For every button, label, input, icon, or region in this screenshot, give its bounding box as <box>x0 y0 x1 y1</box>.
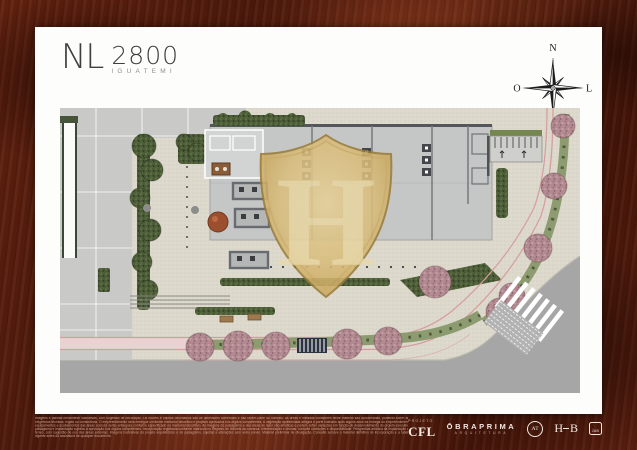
obraprima-sublabel: ARQUITETURA <box>455 432 509 435</box>
brand-subtitle: IGUATEMI <box>111 68 179 75</box>
hb-right-letter: B <box>570 421 578 436</box>
site-plan: H <box>60 108 580 393</box>
walkway <box>63 122 75 258</box>
terrace-table <box>212 163 230 175</box>
legal-disclaimer: Imagens e plantas meramente ilustrativas… <box>35 417 408 447</box>
compass-north-label: N <box>549 43 556 54</box>
brand-initials: NL <box>61 44 103 72</box>
at-monogram-logo: AT <box>527 421 543 437</box>
obraprima-mark: ŌBRAPRIMA <box>447 423 517 431</box>
bench <box>248 314 261 320</box>
hb-left-letter: H <box>554 421 563 436</box>
bike-path <box>60 338 186 349</box>
promenade-hedge <box>195 307 275 315</box>
courtyard-red-tree <box>208 212 228 232</box>
credits-row: PROJETO CFL ŌBRAPRIMA ARQUITETURA AT H B… <box>408 417 602 438</box>
rooftop-annex <box>205 130 263 178</box>
bench <box>220 316 233 322</box>
ramp-side-hedge <box>496 168 508 218</box>
obraprima-logo: ŌBRAPRIMA ARQUITETURA <box>447 423 517 435</box>
footer-band: Imagens e plantas meramente ilustrativas… <box>35 417 602 447</box>
jab-monogram-logo: JAB <box>589 422 602 435</box>
compass-west-label: O <box>513 84 520 95</box>
hb-bar <box>563 428 569 429</box>
plaza-tree <box>191 206 199 214</box>
presentation-board: NL 2800 IGUATEMI <box>0 0 637 450</box>
hb-monogram-logo: H B <box>554 421 578 436</box>
ventilation-grate <box>297 338 327 353</box>
plaza-tree <box>143 204 151 212</box>
plan-sheet: NL 2800 IGUATEMI <box>35 27 602 414</box>
shield-watermark: H <box>261 135 392 297</box>
courtyard-red-tree-highlight <box>212 216 218 222</box>
cfl-mark: CFL <box>408 425 436 438</box>
brand-logo: NL 2800 IGUATEMI <box>61 44 179 75</box>
compass-east-label: L <box>586 84 592 95</box>
watermark-letter: H <box>276 151 376 293</box>
brand-number: 2800 <box>111 44 179 67</box>
cfl-logo: PROJETO CFL <box>408 420 436 438</box>
